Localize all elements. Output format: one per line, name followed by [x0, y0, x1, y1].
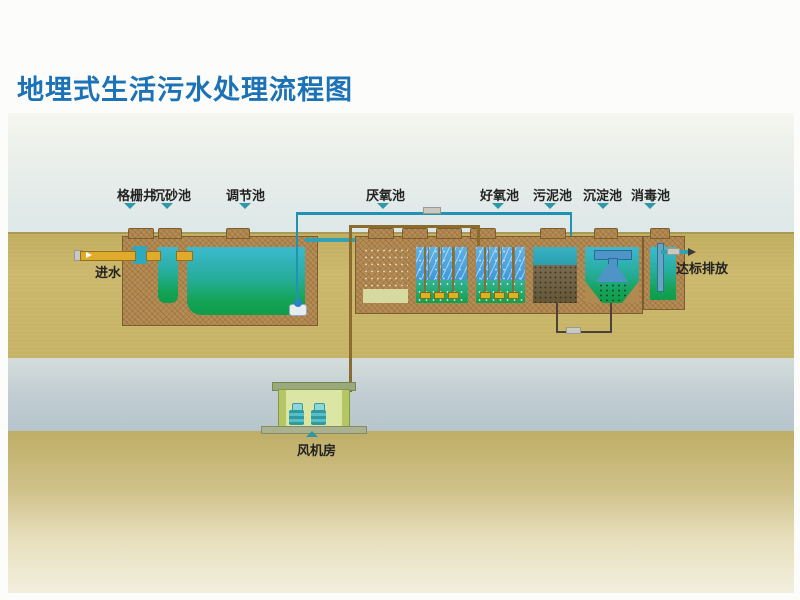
grit-to-regulating-pipe [176, 251, 193, 261]
air-drop-rod [484, 247, 486, 295]
regulating-to-anaerobic-pipe [305, 238, 362, 242]
stage-label-sludge: 污泥池 [533, 185, 572, 204]
stage-pointer-icon [124, 203, 136, 209]
pipe-tag [423, 207, 441, 214]
sludge-return-pipe [556, 331, 612, 333]
tank-sludge-water [533, 247, 577, 265]
aerator [494, 292, 505, 299]
aerator [434, 292, 445, 299]
access-hatch [436, 228, 462, 239]
ground-lower-band [8, 431, 794, 593]
access-hatch [368, 228, 394, 239]
sedimentation-drain-pipe [610, 303, 612, 333]
access-hatch [128, 228, 154, 239]
subsoil-band [8, 358, 794, 431]
access-hatch [158, 228, 182, 239]
stage-label-grid-well: 格栅井 [117, 185, 156, 204]
stage-label-sedimentation: 沉淀池 [583, 185, 622, 204]
access-hatch [226, 228, 250, 239]
access-hatch [650, 228, 670, 239]
page-title: 地埋式生活污水处理流程图 [17, 68, 353, 107]
stage-pointer-icon [161, 203, 173, 209]
inlet-label: 进水 [95, 262, 121, 281]
air-drop-pipe [477, 225, 480, 246]
pump-riser-pipe [296, 212, 298, 304]
air-drop-rod [452, 247, 454, 295]
air-drop-rod [438, 247, 440, 295]
air-main-pipe [349, 225, 480, 228]
outlet-arrow-icon [688, 248, 696, 256]
stage-pointer-icon [377, 203, 389, 209]
stage-pointer-icon [239, 203, 251, 209]
air-drop-rod [424, 247, 426, 295]
scanned-flow-diagram-page: 地埋式生活污水处理流程图 进水 [0, 0, 800, 600]
tank-anaerobic-water [363, 247, 408, 289]
inlet-arrow-icon [86, 252, 92, 258]
blower-unit [311, 410, 326, 425]
stage-label-grit-chamber: 沉砂池 [152, 185, 191, 204]
tank-anaerobic-lower [363, 289, 408, 303]
pipe-tag [667, 248, 680, 255]
access-hatch [594, 228, 618, 239]
air-drop-rod [512, 247, 514, 295]
tank-sludge-solids [533, 265, 577, 303]
blower-room-label: 风机房 [297, 440, 336, 459]
stage-pointer-icon [644, 203, 656, 209]
tank-regulating-water [187, 247, 305, 315]
blower-pointer-icon [306, 431, 318, 437]
air-drop-rod [498, 247, 500, 295]
stage-pointer-icon [597, 203, 609, 209]
stage-label-aerobic: 好氧池 [480, 185, 519, 204]
blower-unit [289, 410, 304, 425]
outlet-label: 达标排放 [676, 258, 728, 277]
aerator [508, 292, 519, 299]
access-hatch [402, 228, 428, 239]
pipe-tag [566, 327, 581, 334]
access-hatch [470, 228, 496, 239]
aerator [420, 292, 431, 299]
sludge-return-riser [556, 303, 558, 333]
stage-pointer-icon [544, 203, 556, 209]
aerator [448, 292, 459, 299]
grid-to-grit-pipe [146, 251, 161, 261]
aerator [480, 292, 491, 299]
stage-label-anaerobic: 厌氧池 [366, 185, 405, 204]
settled-sludge-dots [598, 283, 626, 301]
tank-grit-chamber-water [158, 247, 178, 303]
access-hatch [540, 228, 566, 239]
air-riser-pipe [349, 225, 352, 391]
stage-label-regulating: 调节池 [226, 185, 265, 204]
stage-label-disinfection: 消毒池 [631, 185, 670, 204]
stage-pointer-icon [492, 203, 504, 209]
